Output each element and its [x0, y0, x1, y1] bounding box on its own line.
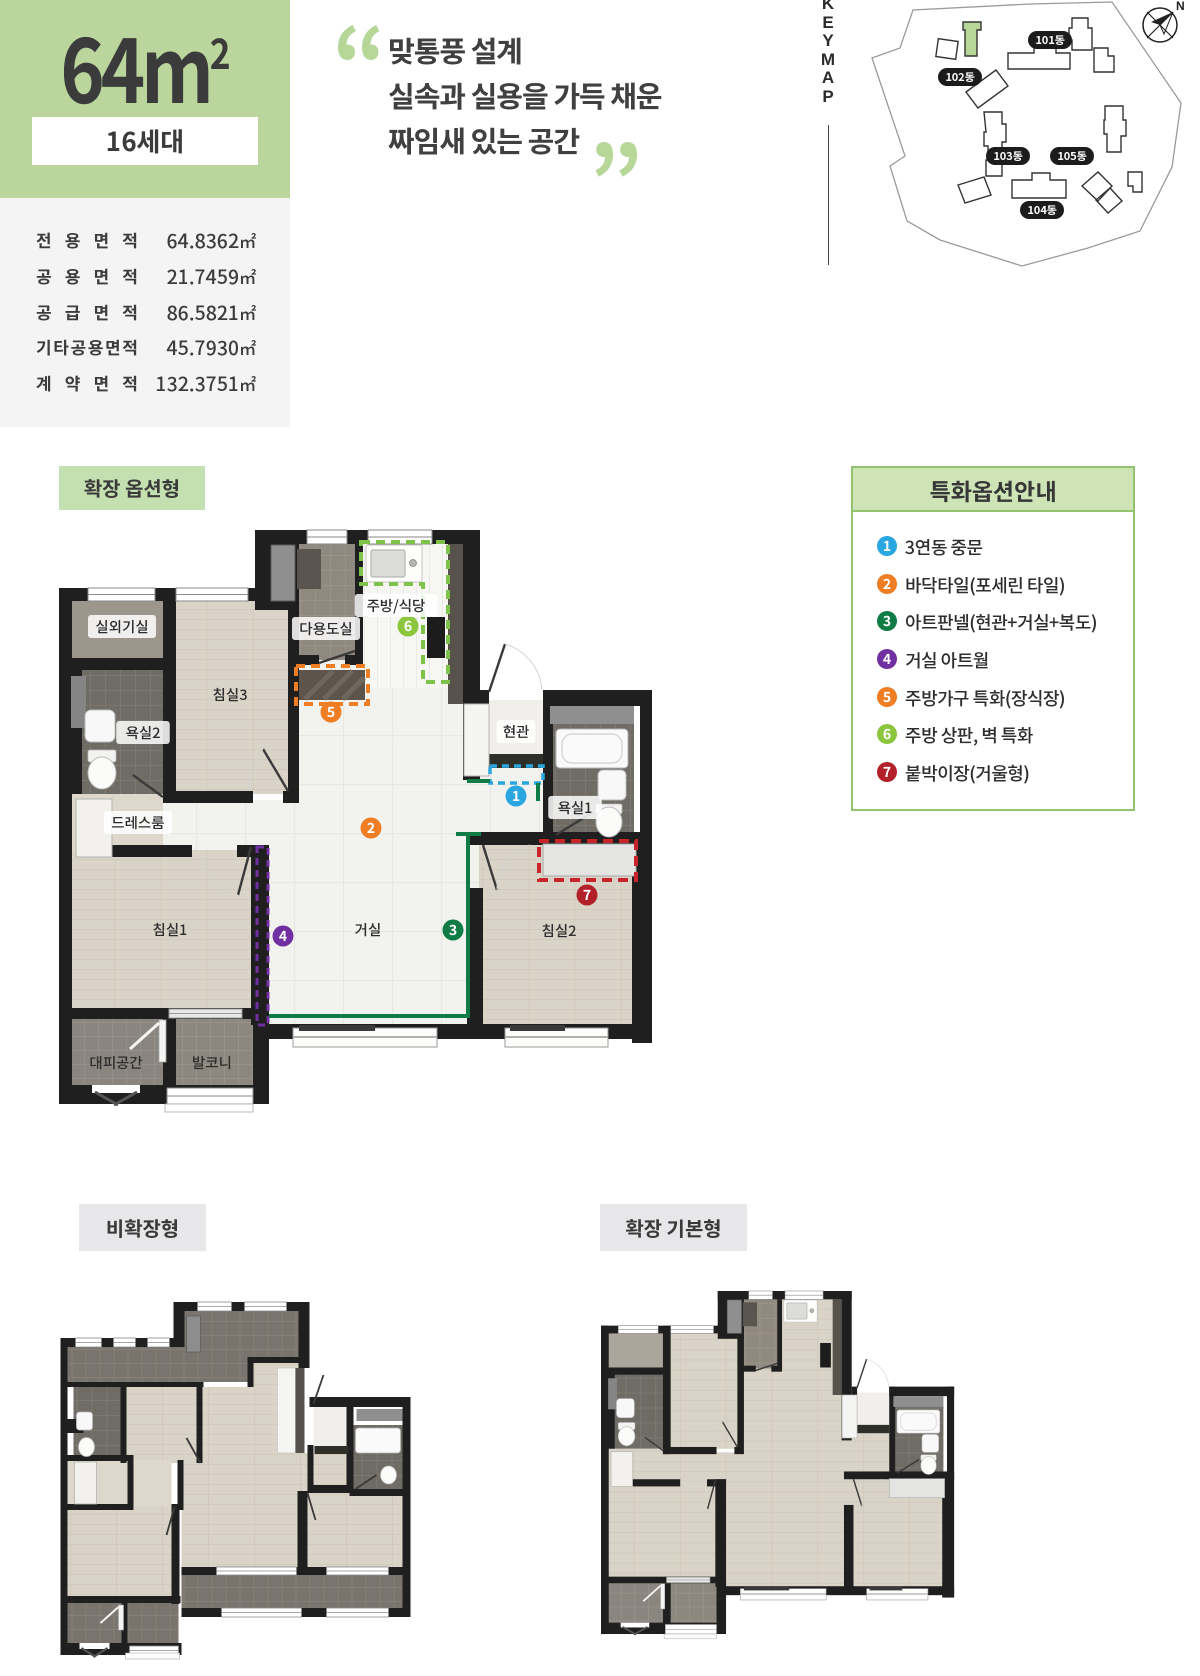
svg-text:대피공간: 대피공간 — [89, 1052, 142, 1073]
svg-text:욕실1: 욕실1 — [558, 797, 593, 818]
svg-text:105동: 105동 — [1057, 148, 1087, 164]
svg-text:거실: 거실 — [355, 919, 382, 940]
svg-text:침실1: 침실1 — [153, 919, 188, 940]
svg-text:실외기실: 실외기실 — [95, 616, 148, 637]
svg-text:드레스룸: 드레스룸 — [111, 812, 164, 833]
svg-text:주방/식당: 주방/식당 — [366, 595, 425, 616]
svg-text:3: 3 — [449, 920, 457, 940]
svg-text:N: N — [1176, 0, 1185, 13]
svg-text:102동: 102동 — [945, 69, 975, 85]
svg-text:욕실2: 욕실2 — [126, 722, 161, 743]
svg-text:침실2: 침실2 — [542, 920, 577, 941]
svg-text:103동: 103동 — [993, 148, 1023, 164]
svg-text:1: 1 — [512, 786, 520, 806]
svg-text:다용도실: 다용도실 — [299, 618, 352, 639]
svg-text:6: 6 — [404, 616, 412, 636]
svg-text:5: 5 — [327, 702, 335, 722]
svg-text:101동: 101동 — [1035, 32, 1065, 48]
svg-text:발코니: 발코니 — [192, 1052, 232, 1073]
svg-text:104동: 104동 — [1027, 202, 1057, 218]
svg-text:침실3: 침실3 — [213, 684, 248, 705]
svg-text:7: 7 — [583, 885, 591, 905]
svg-text:4: 4 — [279, 926, 287, 946]
svg-text:현관: 현관 — [503, 721, 530, 742]
svg-text:2: 2 — [367, 818, 375, 838]
